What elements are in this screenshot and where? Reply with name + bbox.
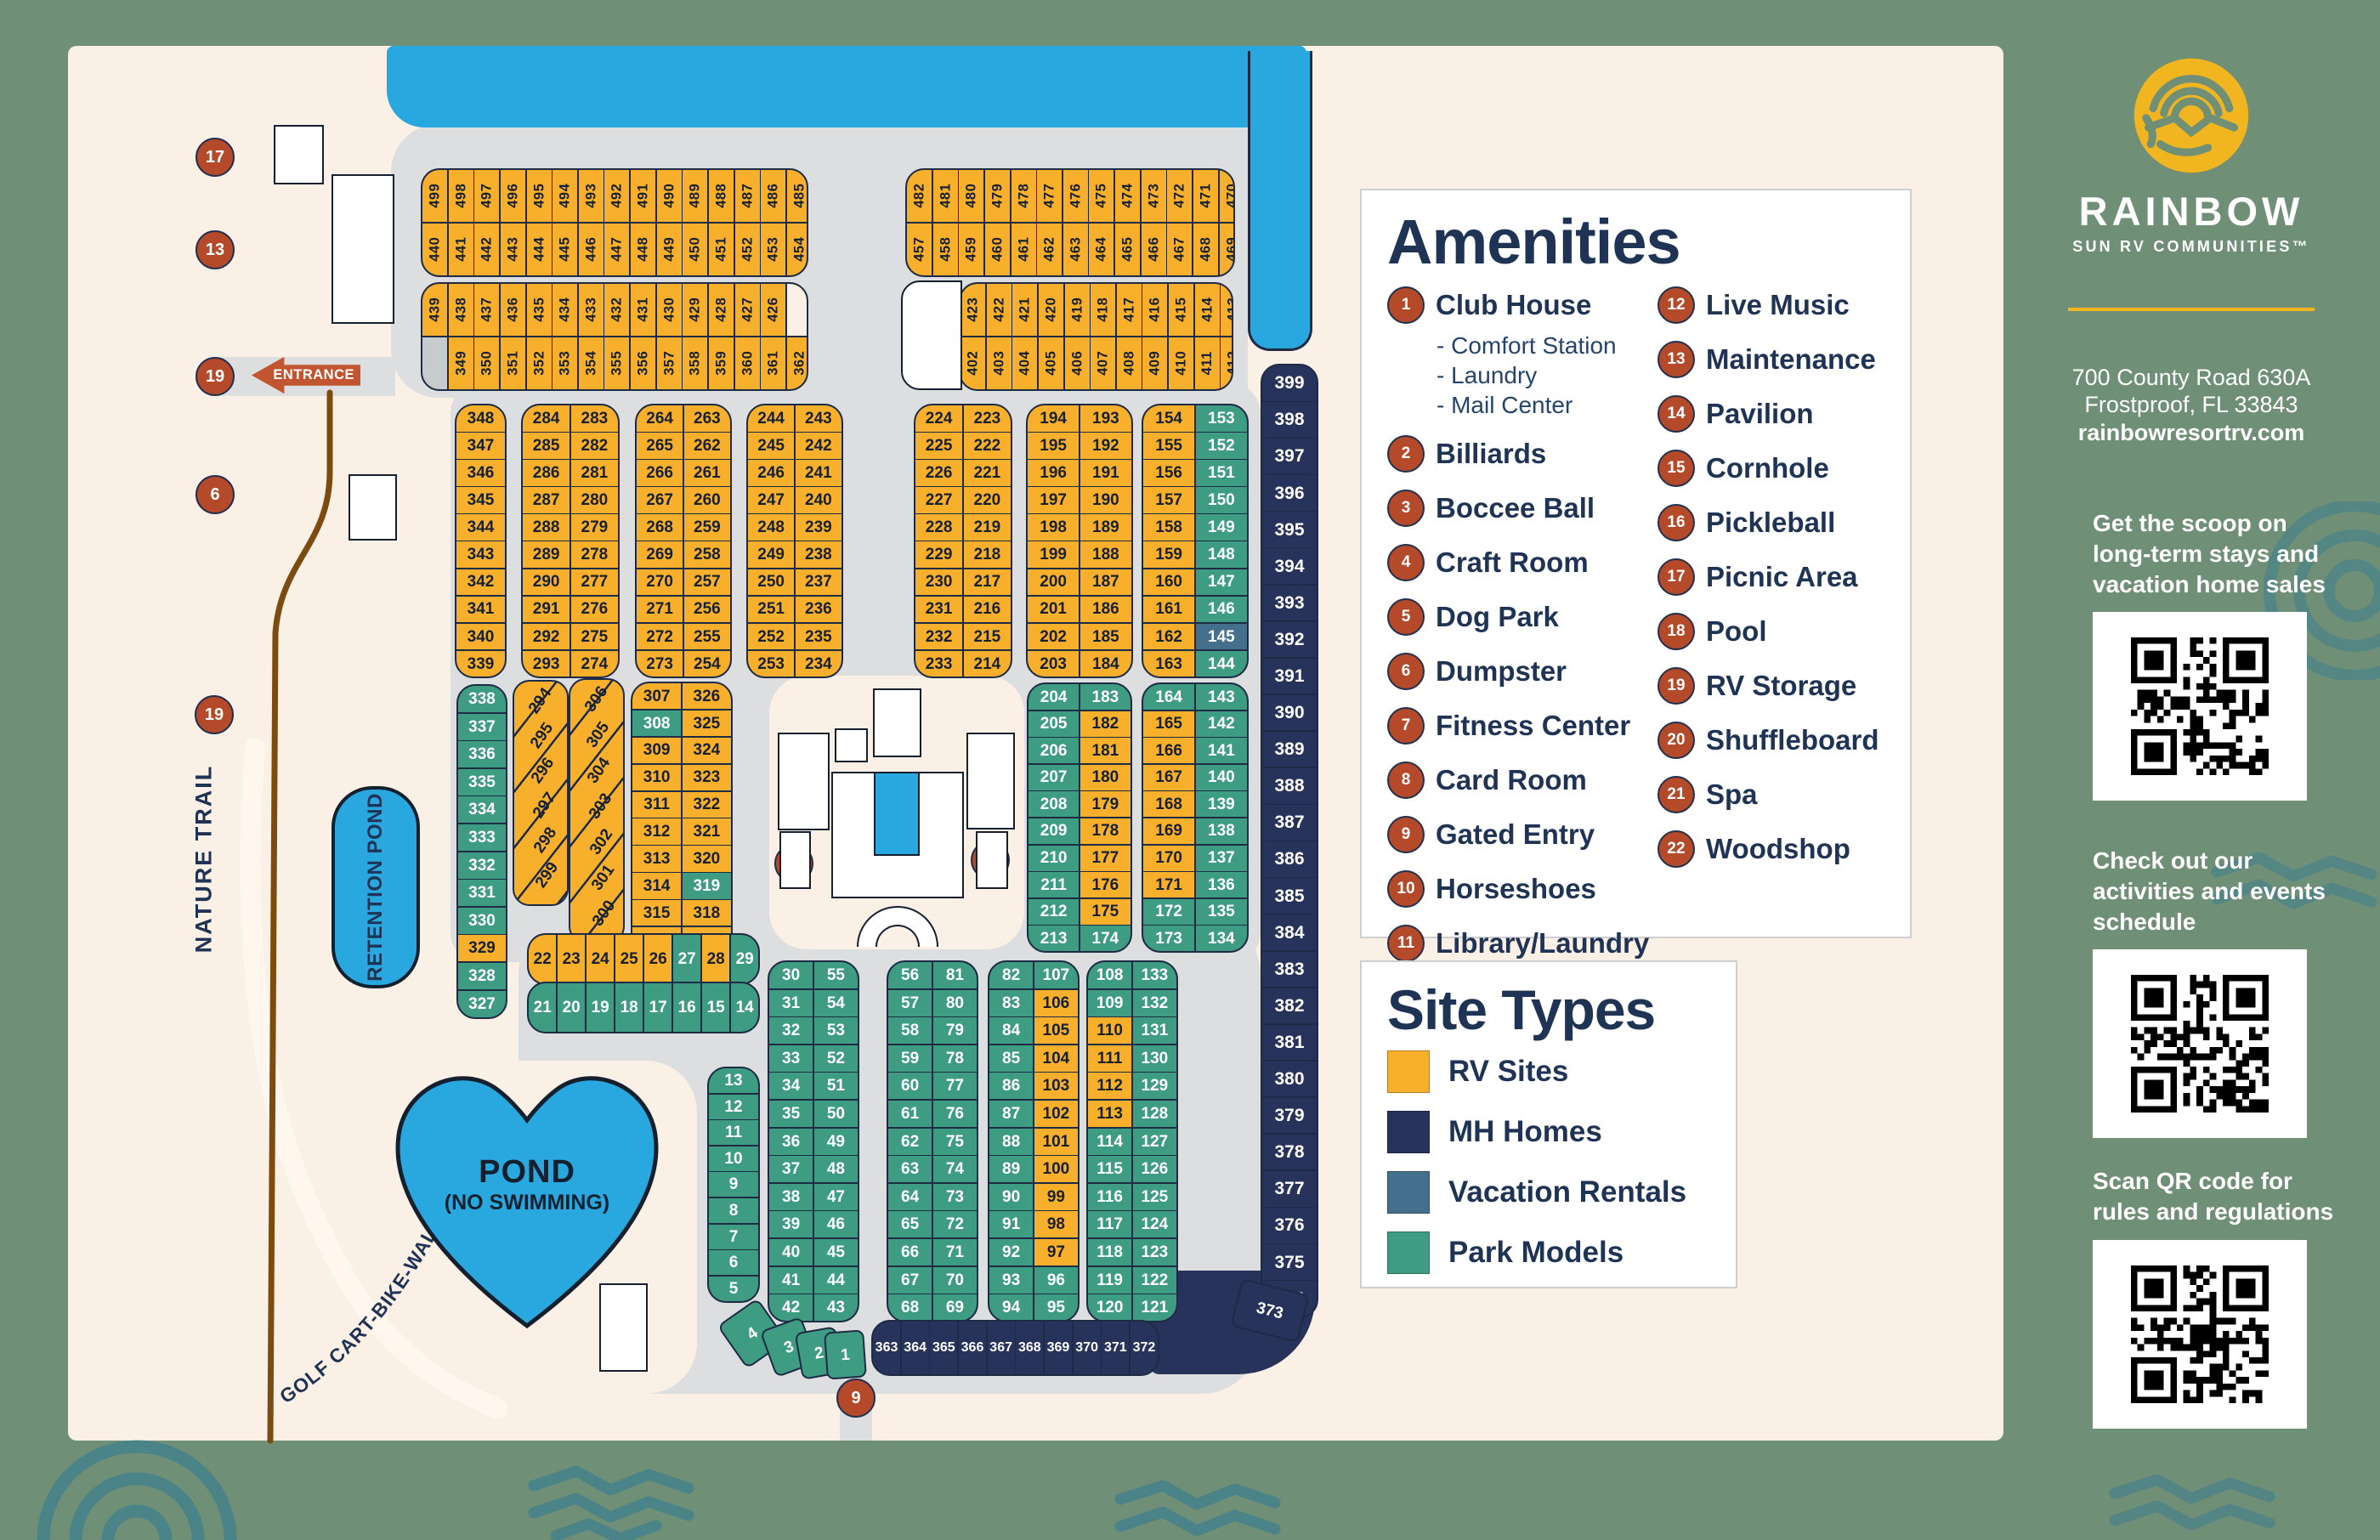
- site-348: 348: [456, 405, 505, 432]
- site-318: 318: [683, 900, 731, 926]
- site-24: 24: [586, 935, 614, 983]
- site-453: 453: [761, 224, 785, 275]
- site-39: 39: [769, 1211, 813, 1237]
- site-202: 202: [1028, 624, 1079, 650]
- site-326: 326: [683, 683, 731, 709]
- site-231: 231: [915, 597, 962, 623]
- site-53: 53: [814, 1017, 858, 1044]
- site-250: 250: [748, 569, 794, 596]
- site-272: 272: [637, 624, 683, 650]
- site-144: 144: [1196, 651, 1247, 677]
- site-186: 186: [1080, 597, 1131, 623]
- site-194: 194: [1028, 405, 1079, 432]
- site-178: 178: [1080, 818, 1130, 844]
- site-417: 417: [1117, 284, 1142, 336]
- site-140: 140: [1196, 765, 1247, 790]
- site-47: 47: [814, 1184, 858, 1210]
- site-469: 469: [1220, 224, 1235, 275]
- site-129: 129: [1133, 1073, 1176, 1099]
- site-block-rv-307: 3073263083253093243103233113223123213133…: [631, 682, 733, 954]
- site-288: 288: [523, 514, 569, 541]
- site-65: 65: [888, 1211, 932, 1237]
- amenity-item-6: 6Dumpster: [1387, 653, 1657, 690]
- site-76: 76: [933, 1101, 977, 1127]
- site-248: 248: [748, 514, 794, 541]
- amenity-subitem: - Mail Center: [1436, 390, 1657, 420]
- site-213: 213: [1028, 926, 1079, 951]
- amenity-sublist: - Comfort Station- Laundry- Mail Center: [1436, 331, 1657, 420]
- site-435: 435: [527, 284, 552, 336]
- amenity-item-1: 1Club House: [1387, 286, 1657, 324]
- site-160: 160: [1143, 569, 1194, 596]
- site-type-swatch: [1387, 1231, 1430, 1274]
- site-204: 204: [1028, 684, 1079, 710]
- site-75: 75: [933, 1129, 977, 1155]
- site-336: 336: [458, 741, 506, 767]
- site-181: 181: [1080, 738, 1130, 763]
- amenities-column-2: 12Live Music13Maintenance14Pavilion15Cor…: [1657, 286, 1879, 979]
- site-212: 212: [1028, 899, 1079, 925]
- amenity-label: Gated Entry: [1436, 818, 1595, 851]
- site-type-label: MH Homes: [1448, 1115, 1602, 1149]
- amenities-title: Amenities: [1387, 206, 1910, 278]
- site-354: 354: [579, 337, 603, 389]
- site-29: 29: [731, 935, 758, 983]
- amenity-label: Spa: [1706, 778, 1758, 811]
- site-245: 245: [748, 433, 794, 459]
- site-434: 434: [552, 284, 577, 336]
- site-159: 159: [1143, 541, 1194, 568]
- site-285: 285: [523, 433, 569, 459]
- site-416: 416: [1142, 284, 1167, 336]
- site-267: 267: [637, 487, 683, 513]
- site-132: 132: [1133, 990, 1176, 1016]
- site-362: 362: [787, 337, 808, 389]
- site-322: 322: [683, 792, 731, 818]
- site-339: 339: [456, 651, 505, 677]
- site-block-pm-13: 1312111098765: [707, 1067, 760, 1303]
- site-199: 199: [1028, 541, 1079, 568]
- site-422: 422: [987, 284, 1011, 336]
- site-459: 459: [959, 224, 983, 275]
- site-364: 364: [902, 1322, 929, 1374]
- site-84: 84: [989, 1017, 1033, 1044]
- site-452: 452: [735, 224, 760, 275]
- site-96: 96: [1034, 1267, 1078, 1294]
- site-395: 395: [1262, 512, 1317, 547]
- site-447: 447: [604, 224, 629, 275]
- site-475: 475: [1089, 170, 1113, 222]
- site-286: 286: [523, 460, 569, 486]
- site-block-mx-108: 1081331091321101311111301121291131281141…: [1086, 960, 1178, 1322]
- site-89: 89: [989, 1156, 1033, 1182]
- site-457: 457: [907, 224, 932, 275]
- site-183: 183: [1080, 684, 1130, 710]
- site-244: 244: [748, 405, 794, 432]
- site-124: 124: [1133, 1211, 1176, 1237]
- site-137: 137: [1196, 846, 1247, 871]
- pond-name: POND: [387, 1154, 667, 1191]
- site-270: 270: [637, 569, 683, 596]
- site-108: 108: [1088, 962, 1131, 988]
- site-498: 498: [449, 170, 473, 222]
- site-13: 13: [709, 1068, 758, 1093]
- empty-cell: [787, 284, 808, 336]
- site-167: 167: [1143, 765, 1194, 790]
- site-8: 8: [709, 1198, 758, 1223]
- site-type-row: MH Homes: [1387, 1111, 1714, 1153]
- site-type-row: Vacation Rentals: [1387, 1171, 1714, 1214]
- amenity-number-badge: 10: [1387, 870, 1425, 908]
- site-145: 145: [1196, 624, 1247, 650]
- site-235: 235: [796, 624, 841, 650]
- site-276: 276: [571, 597, 618, 623]
- site-241: 241: [796, 460, 841, 486]
- site-419: 419: [1065, 284, 1090, 336]
- site-324: 324: [683, 738, 731, 763]
- site-477: 477: [1037, 170, 1062, 222]
- site-171: 171: [1143, 872, 1194, 897]
- site-462: 462: [1037, 224, 1062, 275]
- site-170: 170: [1143, 846, 1194, 871]
- amenities-columns: 1Club House- Comfort Station- Laundry- M…: [1362, 286, 1910, 979]
- site-176: 176: [1080, 872, 1130, 897]
- site-98: 98: [1034, 1211, 1078, 1237]
- site-290: 290: [523, 569, 569, 596]
- amenity-marker-9: 9: [836, 1379, 875, 1418]
- amenity-label: Woodshop: [1706, 833, 1850, 865]
- amenity-number-badge: 13: [1657, 341, 1695, 378]
- amenity-label: Live Music: [1706, 289, 1850, 321]
- site-458: 458: [933, 224, 958, 275]
- site-20: 20: [558, 983, 585, 1032]
- amenity-item-20: 20Shuffleboard: [1657, 722, 1879, 759]
- site-97: 97: [1034, 1239, 1078, 1265]
- site-67: 67: [888, 1267, 932, 1294]
- cornhole-horseshoes-area: [966, 733, 1015, 829]
- site-327: 327: [458, 991, 506, 1017]
- site-266: 266: [637, 460, 683, 486]
- site-382: 382: [1262, 988, 1317, 1024]
- site-464: 464: [1089, 224, 1113, 275]
- site-280: 280: [571, 487, 618, 513]
- amenity-marker-19: 19: [195, 357, 235, 396]
- site-319: 319: [683, 873, 731, 898]
- site-398: 398: [1262, 402, 1317, 438]
- site-390: 390: [1262, 695, 1317, 731]
- resort-map-poster: GOLF CART-BIKE-WALKING PATH RETENTION PO…: [0, 0, 2380, 1540]
- site-410: 410: [1169, 337, 1193, 389]
- site-485: 485: [787, 170, 808, 222]
- site-173: 173: [1143, 926, 1194, 951]
- site-165: 165: [1143, 711, 1194, 737]
- site-361: 361: [761, 337, 785, 389]
- pavilion-building: [274, 125, 324, 184]
- site-189: 189: [1080, 514, 1131, 541]
- site-496: 496: [501, 170, 525, 222]
- site-379: 379: [1262, 1098, 1317, 1134]
- site-105: 105: [1034, 1017, 1078, 1044]
- site-5: 5: [709, 1277, 758, 1301]
- amenity-number-badge: 4: [1387, 544, 1425, 581]
- site-242: 242: [796, 433, 841, 459]
- amenity-label: Card Room: [1436, 764, 1587, 796]
- site-404: 404: [1012, 337, 1037, 389]
- site-types-panel: Site Types RV SitesMH HomesVacation Rent…: [1360, 960, 1737, 1288]
- site-59: 59: [888, 1045, 932, 1072]
- site-161: 161: [1143, 597, 1194, 623]
- amenity-number-badge: 6: [1387, 653, 1425, 690]
- site-64: 64: [888, 1184, 932, 1210]
- site-block-rv-224: 2242232252222262212272202282192292182302…: [914, 404, 1012, 678]
- site-158: 158: [1143, 514, 1194, 541]
- site-409: 409: [1142, 337, 1167, 389]
- site-230: 230: [915, 569, 962, 596]
- site-454: 454: [787, 224, 808, 275]
- site-225: 225: [915, 433, 962, 459]
- site-130: 130: [1133, 1045, 1176, 1072]
- site-92: 92: [989, 1239, 1033, 1265]
- site-79: 79: [933, 1017, 977, 1044]
- amenity-number-badge: 19: [1657, 667, 1695, 705]
- site-278: 278: [571, 541, 618, 568]
- site-380: 380: [1262, 1062, 1317, 1097]
- site-201: 201: [1028, 597, 1079, 623]
- site-311: 311: [632, 792, 681, 818]
- site-126: 126: [1133, 1156, 1176, 1182]
- site-10: 10: [709, 1147, 758, 1171]
- site-86: 86: [989, 1073, 1033, 1099]
- site-441: 441: [449, 224, 473, 275]
- site-102: 102: [1034, 1101, 1078, 1127]
- site-499: 499: [422, 170, 447, 222]
- site-403: 403: [987, 337, 1011, 389]
- site-277: 277: [571, 569, 618, 596]
- amenity-item-13: 13Maintenance: [1657, 341, 1879, 378]
- site-123: 123: [1133, 1239, 1176, 1265]
- site-366: 366: [959, 1322, 986, 1374]
- dog-park-building: [331, 174, 394, 324]
- site-17: 17: [644, 983, 671, 1032]
- amenity-label: Boccee Ball: [1436, 492, 1595, 524]
- site-214: 214: [964, 651, 1011, 677]
- site-206: 206: [1028, 738, 1079, 763]
- site-19: 19: [586, 983, 614, 1032]
- site-246: 246: [748, 460, 794, 486]
- site-21: 21: [529, 983, 556, 1032]
- site-type-rows: RV SitesMH HomesVacation RentalsPark Mod…: [1362, 1050, 1736, 1274]
- site-172: 172: [1143, 899, 1194, 925]
- site-99: 99: [1034, 1184, 1078, 1210]
- site-478: 478: [1011, 170, 1036, 222]
- amenity-label: Pool: [1706, 615, 1767, 648]
- site-30: 30: [769, 962, 813, 988]
- site-315: 315: [632, 900, 681, 926]
- site-103: 103: [1034, 1073, 1078, 1099]
- site-31: 31: [769, 990, 813, 1016]
- site-321: 321: [683, 818, 731, 844]
- site-271: 271: [637, 597, 683, 623]
- site-28: 28: [702, 935, 729, 983]
- site-393: 393: [1262, 586, 1317, 621]
- site-78: 78: [933, 1045, 977, 1072]
- site-109: 109: [1088, 990, 1131, 1016]
- site-11: 11: [709, 1120, 758, 1145]
- site-392: 392: [1262, 622, 1317, 658]
- pickleball-court: [778, 733, 830, 830]
- site-289: 289: [523, 541, 569, 568]
- site-43: 43: [814, 1294, 858, 1321]
- site-191: 191: [1080, 460, 1131, 486]
- amenity-label: Billiards: [1436, 438, 1546, 470]
- site-51: 51: [814, 1073, 858, 1099]
- site-block-mh-bottom: 363364365366367368369370371372: [871, 1320, 1159, 1376]
- site-411: 411: [1195, 337, 1220, 389]
- site-141: 141: [1196, 738, 1247, 763]
- empty-cell: [422, 337, 447, 389]
- site-314: 314: [632, 873, 681, 898]
- amenity-number-badge: 8: [1387, 762, 1425, 799]
- site-376: 376: [1262, 1208, 1317, 1243]
- site-block-pm-56: 5681578058795978607761766275637464736572…: [887, 960, 978, 1322]
- site-237: 237: [796, 569, 841, 596]
- site-157: 157: [1143, 487, 1194, 513]
- amenity-label: Craft Room: [1436, 546, 1589, 579]
- site-479: 479: [985, 170, 1010, 222]
- amenity-label: Library/Laundry: [1436, 927, 1649, 960]
- site-88: 88: [989, 1129, 1033, 1155]
- amenity-subitem: - Comfort Station: [1436, 331, 1657, 360]
- site-247: 247: [748, 487, 794, 513]
- amenity-item-10: 10Horseshoes: [1387, 870, 1657, 908]
- site-83: 83: [989, 990, 1033, 1016]
- site-341: 341: [456, 597, 505, 623]
- site-220: 220: [964, 487, 1011, 513]
- amenity-item-16: 16Pickleball: [1657, 504, 1879, 541]
- site-27: 27: [673, 935, 700, 983]
- site-378: 378: [1262, 1135, 1317, 1170]
- site-45: 45: [814, 1239, 858, 1265]
- site-219: 219: [964, 514, 1011, 541]
- site-block-rv-348: 348347346345344343342341340339: [455, 404, 507, 678]
- site-291: 291: [523, 597, 569, 623]
- site-62: 62: [888, 1129, 932, 1155]
- site-210: 210: [1028, 846, 1079, 871]
- site-233: 233: [915, 651, 962, 677]
- site-292: 292: [523, 624, 569, 650]
- site-127: 127: [1133, 1129, 1176, 1155]
- site-116: 116: [1088, 1184, 1131, 1210]
- site-388: 388: [1262, 768, 1317, 804]
- site-block-pm-338: 338337336335334333332331330329328327: [456, 684, 507, 1019]
- site-268: 268: [637, 514, 683, 541]
- site-23: 23: [558, 935, 585, 983]
- site-200: 200: [1028, 569, 1079, 596]
- site-443: 443: [501, 224, 525, 275]
- site-224: 224: [915, 405, 962, 432]
- site-466: 466: [1142, 224, 1166, 275]
- site-166: 166: [1143, 738, 1194, 763]
- card-room-building: [901, 280, 962, 390]
- site-391: 391: [1262, 659, 1317, 694]
- site-349: 349: [449, 337, 473, 389]
- site-396: 396: [1262, 475, 1317, 511]
- site-335: 335: [458, 769, 506, 795]
- site-381: 381: [1262, 1025, 1317, 1061]
- site-182: 182: [1080, 711, 1130, 737]
- site-152: 152: [1196, 433, 1247, 459]
- amenity-label: Pavilion: [1706, 398, 1814, 430]
- site-type-label: Vacation Rentals: [1448, 1175, 1686, 1209]
- site-386: 386: [1262, 841, 1317, 877]
- site-365: 365: [930, 1322, 957, 1374]
- site-283: 283: [571, 405, 618, 432]
- site-263: 263: [684, 405, 730, 432]
- site-358: 358: [683, 337, 707, 389]
- site-90: 90: [989, 1184, 1033, 1210]
- site-85: 85: [989, 1045, 1033, 1072]
- amenity-marker-17: 17: [195, 138, 235, 177]
- amenity-number-badge: 18: [1657, 613, 1695, 650]
- site-12: 12: [709, 1095, 758, 1119]
- amenity-marker-19: 19: [195, 695, 234, 734]
- site-313: 313: [632, 846, 681, 871]
- site-407: 407: [1091, 337, 1115, 389]
- site-236: 236: [796, 597, 841, 623]
- site-442: 442: [474, 224, 499, 275]
- site-257: 257: [684, 569, 730, 596]
- site-353: 353: [552, 337, 577, 389]
- site-243: 243: [796, 405, 841, 432]
- site-330: 330: [458, 908, 506, 934]
- site-block-rv-482: 4824814804794784774764754744734724714704…: [905, 168, 1235, 277]
- site-273: 273: [637, 651, 683, 677]
- site-494: 494: [552, 170, 577, 222]
- amenity-label: Cornhole: [1706, 452, 1829, 484]
- amenity-number-badge: 2: [1387, 435, 1425, 473]
- site-162: 162: [1143, 624, 1194, 650]
- amenity-number-badge: 14: [1657, 395, 1695, 433]
- nature-trail-label: NATURE TRAIL: [191, 749, 218, 970]
- entrance-label: ENTRANCE: [273, 367, 354, 383]
- site-121: 121: [1133, 1294, 1176, 1321]
- site-104: 104: [1034, 1045, 1078, 1072]
- site-6: 6: [709, 1250, 758, 1275]
- site-332: 332: [458, 852, 506, 879]
- site-264: 264: [637, 405, 683, 432]
- site-368: 368: [1016, 1322, 1043, 1374]
- amenity-item-15: 15Cornhole: [1657, 450, 1879, 487]
- site-15: 15: [702, 983, 729, 1032]
- site-198: 198: [1028, 514, 1079, 541]
- site-56: 56: [888, 962, 932, 988]
- site-492: 492: [604, 170, 629, 222]
- site-139: 139: [1196, 791, 1247, 817]
- site-255: 255: [684, 624, 730, 650]
- site-block-mx-82: 8210783106841058510486103871028810189100…: [988, 960, 1079, 1322]
- site-151: 151: [1196, 460, 1247, 486]
- site-451: 451: [709, 224, 734, 275]
- amenity-marker-13: 13: [195, 230, 235, 269]
- site-35: 35: [769, 1101, 813, 1127]
- site-428: 428: [709, 284, 734, 336]
- site-429: 429: [683, 284, 707, 336]
- site-309: 309: [632, 738, 681, 763]
- amenity-item-9: 9Gated Entry: [1387, 816, 1657, 853]
- site-340: 340: [456, 624, 505, 650]
- site-217: 217: [964, 569, 1011, 596]
- amenity-item-21: 21Spa: [1657, 776, 1879, 813]
